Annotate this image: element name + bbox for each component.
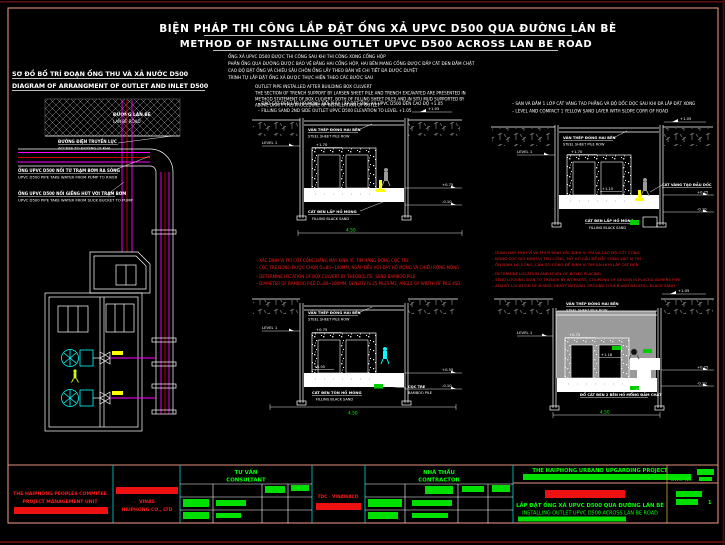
- main-title-vi: BIỆN PHÁP THI CÔNG LẮP ĐẶT ỐNG XẢ UPVC D…: [159, 20, 617, 35]
- signature-bar: [265, 486, 285, 493]
- sheet-pile-label-en: STEEL SHEET PILE ROW: [563, 143, 605, 147]
- level-ref-label: LEVEL 1: [517, 149, 533, 154]
- red-note: – ĐÓNG CỌC GIỮ ĐỊNH VỊ TRỤ CỐNG, MỞ HỐ C…: [492, 256, 642, 261]
- level-top: +1.70: [316, 143, 328, 147]
- outlet-pipe-label-vi: ỐNG UPVC D500 NỐI TỪ TRẠM BƠM RA SÔNG: [18, 168, 120, 173]
- inlet-pipe-label-en: UPVC D500 PIPE TAKE WATER FROM SUCK BUCK…: [18, 198, 133, 203]
- step2-note-en: – LEVEL AND COMPACT 1 YELLOW SAND LAYER …: [512, 109, 668, 114]
- level-top: +0.75: [316, 328, 328, 332]
- signature-bar: [291, 485, 309, 491]
- consultant-label-en: CONSULTANT: [226, 478, 266, 484]
- signature-bar: [699, 477, 712, 481]
- bamboo-label-en: BAMBOO PILE: [408, 391, 432, 395]
- left-title-vi: SƠ ĐỒ BỐ TRÍ ĐOẠN ỐNG THU VÀ XẢ NƯỚC D50…: [12, 68, 189, 78]
- signature-bar: [492, 485, 510, 492]
- consultant-label-vi: TƯ VẤN: [235, 468, 258, 476]
- signature-bar: [412, 500, 452, 506]
- level-flag-top: +1.05: [678, 289, 690, 293]
- redacted-bar: [14, 507, 108, 514]
- dimension-text: 4.50: [346, 228, 356, 234]
- level-ref-label: LEVEL 1: [517, 330, 533, 335]
- sheet-pile-label-en: STEEL SHEET PILE ROW: [308, 135, 350, 139]
- signature-bar: [676, 491, 702, 497]
- level-flag-top: +1.05: [428, 107, 440, 111]
- sheet-pile-label-en: STEEL SHEET PILE ROW: [566, 309, 608, 313]
- red-note: – SEND LOCKING SIGN TO TRENCH BY WORKERS…: [492, 277, 681, 282]
- red-note: – DETERMINE LOCATION OF BOX CULVERT BY T…: [256, 274, 416, 279]
- cad-drawing-sheet: BIỆN PHÁP THI CÔNG LẮP ĐẶT ỐNG XẢ UPVC D…: [0, 0, 725, 545]
- ground-hatch: [408, 300, 456, 314]
- redacted-bar: [523, 474, 691, 480]
- top-red-edge: [0, 1, 725, 3]
- signature-bar: [425, 486, 453, 494]
- right-red-edge: [723, 0, 725, 545]
- redacted-bar: [116, 487, 178, 494]
- employer-cell: THE HAIPHONG PEOPLES COMMITEE PROJECT MA…: [13, 491, 108, 514]
- level-mid: +1.18: [601, 353, 613, 357]
- outlet-pipe-label-en: UPVC D500 PIPE TAKE WATER FROM PUMP TO R…: [18, 175, 118, 180]
- level-right-2: -0.10: [442, 200, 452, 204]
- red-note: – CỌC TRE ĐÓNG ĐƯỢC CHỌN D=80~100MM, NGẬ…: [256, 265, 459, 270]
- yellow-sand-label: CÁT VÀNG TẠO ĐẦU DỐC: [662, 182, 712, 187]
- level-right-1: +0.25: [697, 366, 709, 370]
- sheet-pile-label-vi: VÁN THÉP ĐÓNG HAI BÊN: [566, 301, 619, 306]
- signature-bar: [368, 512, 398, 519]
- method-note-vi-2: PHẦN ỐNG QUA ĐƯỜNG ĐƯỢC BẢO VỆ BẰNG HAI …: [228, 61, 475, 66]
- level-right-1: +0.55: [442, 368, 454, 372]
- level-right-2: -0.10: [697, 382, 707, 386]
- drawing-title-en: INSTALLING OUTLET UPVC D500 ACROSS LAN B…: [522, 511, 658, 517]
- red-note: – DIAMETER OF BAMBOO PILE D=80~100MM, DE…: [256, 281, 460, 286]
- fill-label-vi: ĐỔ CÁT ĐEN 2 BÊN HỐ MÓNG ĐẦM CHẶT: [580, 392, 662, 397]
- red-note: – DETERMINE LOCATION AND LEVEL OF BOXES …: [492, 271, 601, 276]
- bamboo-pile-mark: [643, 349, 652, 353]
- fill-label-en: FILLING BLACK SAND: [316, 398, 353, 402]
- bamboo-pile-mark: [374, 384, 383, 389]
- redacted-bar: [518, 517, 626, 522]
- bamboo-pile-mark: [630, 386, 639, 390]
- red-note: – XÁC ĐỊNH VỊ TRÍ CỐT CỐNG BẰNG MÁY KINH…: [256, 258, 409, 263]
- main-title-en: METHOD OF INSTALLING OUTLET UPVC D500 AC…: [180, 39, 592, 50]
- access-label-vi: ĐƯỜNG ĐIỆN TRUYỀN LỰC: [58, 139, 117, 144]
- outlet-note-1: THE SECTION OF TRENCH SUPPORT BY LARSEN …: [254, 91, 466, 96]
- vinas-line1: VINAS: [139, 499, 155, 505]
- signature-bar: [412, 513, 448, 518]
- level-right-1: +0.75: [442, 183, 454, 187]
- sheet-background: [0, 0, 725, 545]
- red-note: – DÙNG MÁY KINH VĨ VÀ THUỶ BÌNH XÁC ĐỊNH…: [492, 250, 640, 255]
- step2-note-vi: – SAN VÀ ĐẦM 1 LỚP CÁT VÀNG TẠO PHẲNG VÀ…: [512, 101, 695, 106]
- method-note-vi-3: CAO ĐỘ ĐẶT ỐNG VÀ CHIỀU SÂU CHÔN ỐNG LẤY…: [228, 67, 418, 73]
- level-bottom: +0.20: [316, 192, 328, 196]
- step1-note-en: – FILLING SAND 2ND SIDE OUTLET UPVC D500…: [258, 108, 412, 113]
- black-sand-label-en: FILLING BLACK SAND: [312, 217, 349, 221]
- level-right-2: -0.10: [442, 384, 452, 388]
- left-title-en: DIAGRAM OF ARRANGMENT OF OUTLET AND INLE…: [12, 83, 209, 90]
- level-top: +0.75: [569, 333, 581, 337]
- level-ref-label: LEVEL 1: [262, 140, 278, 145]
- level-right-1: +0.25: [697, 191, 709, 195]
- tdc-label: TDC - VINAWACO: [318, 494, 359, 500]
- signature-bar: [676, 499, 698, 505]
- employer-line1: THE HAIPHONG PEOPLES COMMITEE: [13, 491, 106, 497]
- ground-hatch: [253, 121, 298, 136]
- black-sand-label-vi: CÁT ĐEN LẤP HỐ MÓNG: [308, 209, 357, 214]
- contractor-label-en: CONTRACTOR: [418, 478, 460, 484]
- sheet-pile-label-en: STEEL SHEET PILE ROW: [308, 318, 350, 322]
- black-sand-label-en: FILLING BLACK SAND: [589, 226, 626, 230]
- signature-bar: [216, 500, 246, 506]
- red-note: – ADJUST LOCATION OF BOXES, HEAVY NATURA…: [492, 283, 675, 288]
- dwg-no-value: 1: [708, 500, 712, 506]
- ground-hatch: [253, 300, 298, 314]
- ground-hatch: [492, 128, 550, 146]
- level-ref-label: LEVEL 1: [262, 325, 278, 330]
- signature-bar: [697, 469, 714, 475]
- level-right-2: -0.10: [697, 208, 707, 212]
- level-mid: +1.15: [602, 187, 613, 191]
- redacted-bar: [545, 490, 625, 498]
- black-sand-label-vi: CÁT ĐEN LẤP HỐ MÓNG: [585, 218, 634, 223]
- bottom-red-edge: [0, 541, 725, 543]
- signature-bar: [183, 499, 209, 507]
- ground-hatch: [663, 300, 713, 314]
- fill-label-vi: CÁT ĐEN TÔN HỐ MÓNG: [312, 390, 362, 395]
- level-top: +1.70: [571, 150, 583, 154]
- sheet-pile-label-vi: VÁN THÉP ĐÓNG HAI BÊN: [308, 310, 361, 315]
- red-note: – ỔN ĐỊNH LẠI CỐNG, CĂN DO CỐNG ĐỂ ĐỊNH …: [492, 262, 639, 267]
- signature-bar: [368, 499, 402, 507]
- signature-bar: [183, 512, 209, 519]
- method-note-vi-4: TRÌNH TỰ LẮP ĐẶT ỐNG XẢ ĐƯỢC THỰC HIỆN T…: [227, 75, 373, 80]
- employer-line2: PROJECT MANAGEMENT UNIT: [23, 499, 99, 505]
- excavation-white-band: [630, 358, 660, 370]
- dimension-text: 4.50: [600, 410, 610, 416]
- level-bottom: +0.05: [314, 365, 325, 369]
- road-band: ĐƯỜNG LÁN BÈ LAN BE ROAD: [45, 99, 180, 136]
- ground-hatch: [495, 300, 550, 314]
- signature-bar: [216, 513, 241, 518]
- redacted-bar: [316, 503, 361, 510]
- bamboo-pile-mark: [630, 220, 639, 225]
- dimension-text: 4.50: [348, 411, 358, 417]
- inlet-pipe-label-vi: ỐNG UPVC D500 NỐI GIẾNG HÚT VỚI TRẠM BƠM: [18, 190, 126, 196]
- drawing-title-vi: LẮP ĐẶT ỐNG XẢ UPVC D500 QUA ĐƯỜNG LÁN B…: [516, 501, 664, 509]
- pipe-support: [112, 351, 123, 355]
- bamboo-pile-mark: [612, 346, 621, 350]
- method-note-vi-1: ỐNG XẢ UPVC D500 ĐƯỢC THI CÔNG SAU KHI T…: [228, 54, 386, 59]
- step1-note-vi: – ĐÀO CÁT ĐEN LẤP HỐ MÓNG ĐỒI PHÍA LẮP Đ…: [258, 100, 443, 106]
- ground-hatch: [408, 121, 460, 136]
- level-flag-top: +1.05: [680, 117, 692, 121]
- access-label-en: ACCESS TO ĐƯỜNG LY KHA: [58, 146, 111, 151]
- sheet-pile-label-vi: VÁN THÉP ĐÓNG HAI BÊN: [563, 135, 616, 140]
- excavation-white-column: [637, 370, 651, 385]
- project-name: THE HAIPHONG URBANO UPGARDING PROJECT: [532, 468, 668, 474]
- bamboo-label-vi: CỌC TRE: [408, 385, 426, 389]
- signature-bar: [462, 486, 484, 492]
- vinas-line2: HAIPHONG CO., LTD: [122, 507, 173, 513]
- sheet-pile-label-vi: VÁN THÉP ĐÓNG HAI BÊN: [308, 127, 361, 132]
- dwg-no-label: DWG. No.: [671, 477, 692, 483]
- outlet-heading: OUTLET PIPE INSTALLED AFTER BUILDING BOX…: [255, 84, 372, 89]
- pipe-support: [112, 391, 123, 395]
- ground-hatch: [664, 128, 712, 146]
